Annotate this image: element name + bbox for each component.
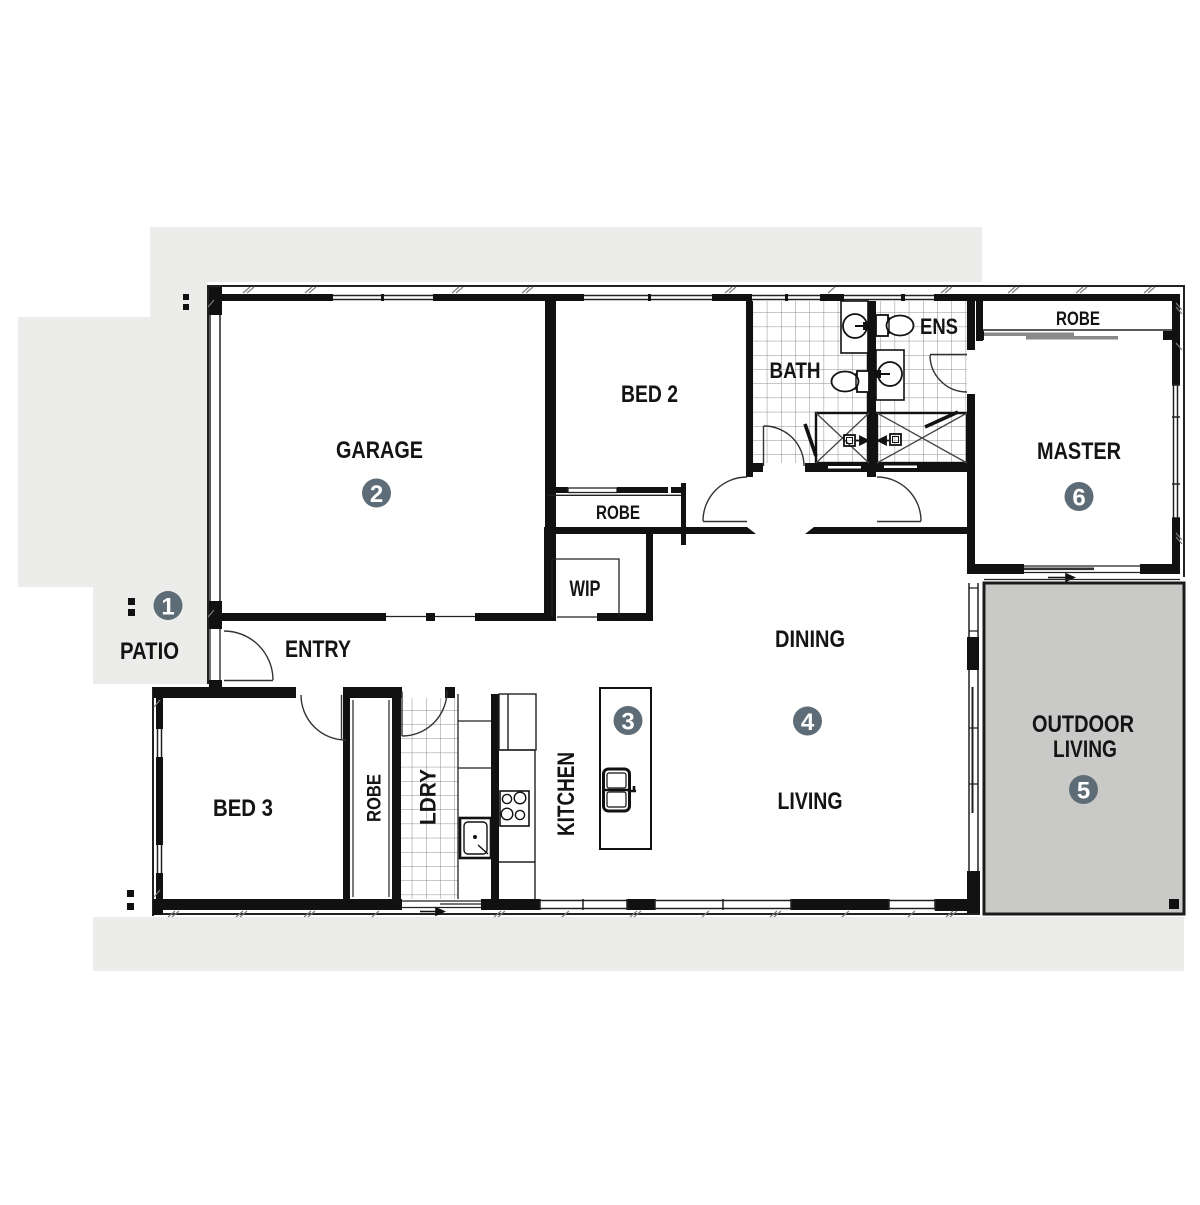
- svg-text:5: 5: [1077, 778, 1090, 805]
- svg-text:PATIO: PATIO: [120, 638, 179, 665]
- svg-text:ENS: ENS: [920, 314, 958, 339]
- svg-text:ROBE: ROBE: [365, 774, 386, 822]
- svg-text:6: 6: [1072, 485, 1085, 512]
- svg-text:BED 3: BED 3: [213, 795, 273, 822]
- svg-text:KITCHEN: KITCHEN: [553, 752, 580, 836]
- svg-text:ROBE: ROBE: [596, 503, 640, 524]
- svg-text:3: 3: [621, 709, 634, 736]
- svg-text:LIVING: LIVING: [1053, 736, 1117, 763]
- svg-text:DINING: DINING: [775, 626, 845, 653]
- svg-text:ROBE: ROBE: [1056, 309, 1100, 330]
- svg-text:GARAGE: GARAGE: [336, 437, 423, 464]
- svg-text:1: 1: [161, 594, 174, 621]
- svg-text:LDRY: LDRY: [416, 769, 441, 825]
- svg-text:2: 2: [370, 481, 383, 508]
- svg-text:BED 2: BED 2: [621, 381, 678, 408]
- svg-text:4: 4: [801, 709, 815, 736]
- svg-text:ENTRY: ENTRY: [285, 636, 351, 663]
- svg-text:OUTDOOR: OUTDOOR: [1032, 711, 1134, 738]
- svg-text:BATH: BATH: [770, 358, 821, 383]
- svg-text:MASTER: MASTER: [1037, 438, 1121, 465]
- svg-text:LIVING: LIVING: [778, 788, 843, 815]
- svg-text:WIP: WIP: [570, 576, 601, 601]
